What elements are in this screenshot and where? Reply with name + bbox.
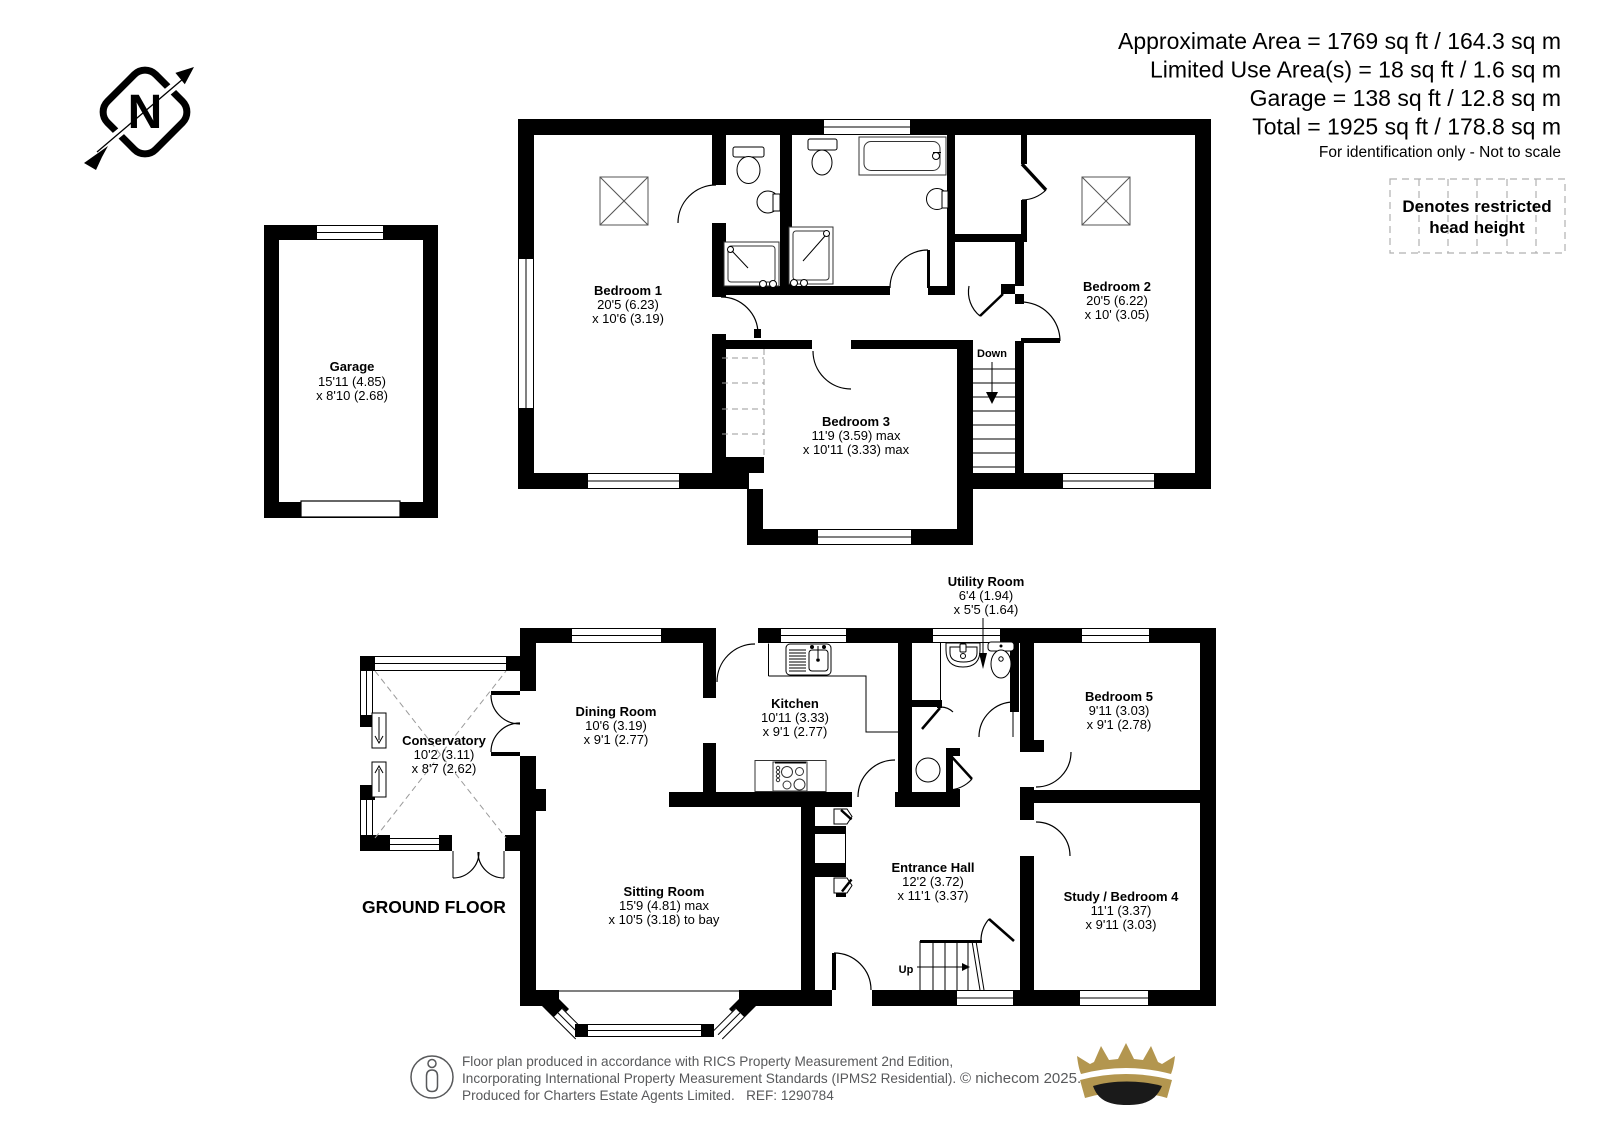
svg-text:11'9 (3.59) max: 11'9 (3.59) max <box>812 428 901 443</box>
svg-text:Produced for Charters Estate A: Produced for Charters Estate Agents Limi… <box>462 1088 834 1103</box>
svg-text:15'9 (4.81) max: 15'9 (4.81) max <box>619 898 709 913</box>
svg-text:x 11'1 (3.37): x 11'1 (3.37) <box>898 888 969 903</box>
svg-text:x 10' (3.05): x 10' (3.05) <box>1085 307 1150 322</box>
svg-text:10'2 (3.11): 10'2 (3.11) <box>414 747 475 762</box>
svg-text:Study / Bedroom 4: Study / Bedroom 4 <box>1064 889 1180 904</box>
svg-text:Bedroom 2: Bedroom 2 <box>1083 279 1151 294</box>
svg-text:Bedroom 3: Bedroom 3 <box>822 414 890 429</box>
svg-text:x 5'5 (1.64): x 5'5 (1.64) <box>954 602 1019 617</box>
svg-text:Floor plan produced in accorda: Floor plan produced in accordance with R… <box>462 1054 953 1069</box>
svg-text:Incorporating International Pr: Incorporating International Property Mea… <box>462 1071 956 1086</box>
svg-text:For identification only - Not: For identification only - Not to scale <box>1319 144 1561 161</box>
svg-text:10'6 (3.19): 10'6 (3.19) <box>585 718 647 733</box>
svg-text:x 9'1 (2.77): x 9'1 (2.77) <box>763 724 828 739</box>
svg-text:x 8'10 (2.68): x 8'10 (2.68) <box>316 388 388 403</box>
svg-text:Conservatory: Conservatory <box>402 733 487 748</box>
svg-text:Sitting Room: Sitting Room <box>624 884 705 899</box>
svg-text:x 9'1 (2.78): x 9'1 (2.78) <box>1087 717 1152 732</box>
svg-text:9'11 (3.03): 9'11 (3.03) <box>1089 703 1150 718</box>
svg-text:Entrance Hall: Entrance Hall <box>891 860 974 875</box>
svg-text:15'11 (4.85): 15'11 (4.85) <box>318 374 386 389</box>
svg-text:Denotes restricted: Denotes restricted <box>1402 197 1551 216</box>
svg-text:Up: Up <box>899 964 914 976</box>
svg-text:Down: Down <box>977 348 1007 360</box>
svg-text:N: N <box>128 86 163 139</box>
svg-text:x 8'7 (2.62): x 8'7 (2.62) <box>412 761 477 776</box>
svg-text:Bedroom 5: Bedroom 5 <box>1085 689 1153 704</box>
svg-text:12'2 (3.72): 12'2 (3.72) <box>902 874 964 889</box>
svg-text:10'11 (3.33): 10'11 (3.33) <box>761 710 829 725</box>
svg-text:Garage = 138 sq ft / 12.8 sq m: Garage = 138 sq ft / 12.8 sq m <box>1250 85 1561 111</box>
svg-text:20'5 (6.23): 20'5 (6.23) <box>597 297 659 312</box>
svg-text:Utility Room: Utility Room <box>948 574 1025 589</box>
svg-text:Approximate Area = 1769 sq ft: Approximate Area = 1769 sq ft / 164.3 sq… <box>1118 28 1561 54</box>
svg-text:© nichecom 2025.: © nichecom 2025. <box>960 1070 1081 1087</box>
svg-text:Dining Room: Dining Room <box>576 704 657 719</box>
svg-text:x 10'11 (3.33) max: x 10'11 (3.33) max <box>803 442 910 457</box>
svg-text:GROUND FLOOR: GROUND FLOOR <box>362 897 506 917</box>
svg-text:11'1 (3.37): 11'1 (3.37) <box>1091 903 1152 918</box>
svg-text:x 9'1 (2.77): x 9'1 (2.77) <box>584 732 649 747</box>
svg-text:x 10'6 (3.19): x 10'6 (3.19) <box>592 311 664 326</box>
svg-text:6'4 (1.94): 6'4 (1.94) <box>959 588 1014 603</box>
svg-text:Limited Use Area(s) = 18 sq ft: Limited Use Area(s) = 18 sq ft / 1.6 sq … <box>1150 57 1561 83</box>
svg-text:head height: head height <box>1429 218 1525 237</box>
svg-text:Total = 1925 sq ft / 178.8 sq: Total = 1925 sq ft / 178.8 sq m <box>1252 114 1561 140</box>
svg-text:Garage: Garage <box>330 359 375 374</box>
svg-text:20'5 (6.22): 20'5 (6.22) <box>1086 293 1148 308</box>
svg-text:Bedroom 1: Bedroom 1 <box>594 283 662 298</box>
svg-text:x 9'11 (3.03): x 9'11 (3.03) <box>1086 917 1157 932</box>
svg-text:x 10'5 (3.18) to bay: x 10'5 (3.18) to bay <box>609 912 720 927</box>
svg-text:Kitchen: Kitchen <box>771 696 819 711</box>
